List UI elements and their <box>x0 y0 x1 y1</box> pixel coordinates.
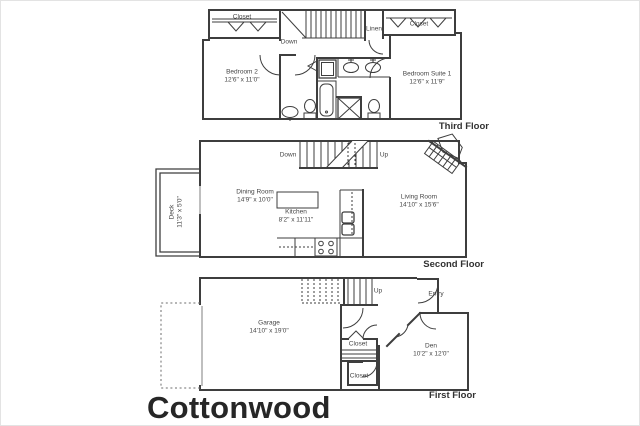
stairs-down <box>282 10 365 38</box>
toilet-icon <box>368 100 380 120</box>
living-room-label: Living Room 14'10" x 15'6" <box>399 194 438 209</box>
driveway-outline <box>161 303 200 388</box>
room-dims: 14'9" x 10'0" <box>236 196 274 204</box>
room-name: Dining Room <box>236 189 274 197</box>
first-floor-label: First Floor <box>429 391 476 401</box>
room-dims: 12'6" x 11'9" <box>403 78 451 86</box>
room-dims: 10'2" x 12'0" <box>413 350 449 358</box>
second-floor-plan <box>156 128 471 257</box>
third-floor-label: Third Floor <box>439 122 489 132</box>
floorplan-page: Closet Down Linen Closet Bedroom 2 12'6"… <box>0 0 640 426</box>
linen-label: Linen <box>366 25 382 33</box>
second-floor-label: Second Floor <box>423 260 484 270</box>
room-name: Living Room <box>399 194 438 202</box>
entry-label: Entry <box>428 290 443 298</box>
room-name: Den <box>413 343 449 351</box>
room-name: Garage <box>249 320 288 328</box>
room-name: Kitchen <box>279 209 314 217</box>
room-dims: 14'10" x 15'6" <box>399 201 438 209</box>
floorplan-linework <box>0 0 640 426</box>
den-label: Den 10'2" x 12'0" <box>413 343 449 358</box>
room-name: Bedroom 2 <box>224 69 259 77</box>
refrigerator-icon <box>342 212 354 235</box>
bedroom-suite1-label: Bedroom Suite 1 12'6" x 11'9" <box>403 71 451 86</box>
bathtub-icon <box>317 81 336 119</box>
washer-dryer-icon <box>319 60 336 78</box>
garage-label: Garage 14'10" x 19'0" <box>249 320 288 335</box>
room-name: Deck <box>169 196 177 228</box>
dining-room-label: Dining Room 14'9" x 10'0" <box>236 189 274 204</box>
room-dims: 12'6" x 11'0" <box>224 76 259 84</box>
stairs-up-label: Up <box>374 287 382 295</box>
bedroom2-label: Bedroom 2 12'6" x 11'0" <box>224 69 259 84</box>
shower-icon <box>338 98 361 119</box>
deck-label: Deck 11'3" x 5'0" <box>169 196 184 228</box>
kitchen-label: Kitchen 8'2" x 11'11" <box>279 209 314 224</box>
corner-fireplace-icon <box>425 128 471 174</box>
plan-title: Cottonwood <box>147 392 331 423</box>
closet-right-label: Closet <box>410 20 428 28</box>
bifold-closet-door <box>348 325 377 339</box>
stairs-switchback <box>300 141 377 168</box>
closet-rod-left <box>212 19 277 31</box>
room-name: Bedroom Suite 1 <box>403 71 451 79</box>
room-dims: 11'3" x 5'0" <box>176 196 184 228</box>
stairs-down-label: Down <box>280 151 297 159</box>
closet-upper-label: Closet <box>349 340 367 348</box>
closet-shelves <box>341 350 377 358</box>
stairs-down-label: Down <box>281 38 298 46</box>
room-dims: 14'10" x 19'0" <box>249 327 288 335</box>
stove-icon <box>315 238 337 256</box>
closet-left-label: Closet <box>233 13 251 21</box>
kitchen-island <box>277 192 318 208</box>
double-vanity-sinks-icon <box>338 58 390 77</box>
stairs-up <box>302 279 377 305</box>
first-floor-plan <box>161 278 468 390</box>
closet-lower-label: Closet <box>350 372 368 380</box>
toilet-icon <box>304 100 316 120</box>
stairs-up-label: Up <box>380 151 388 159</box>
room-dims: 8'2" x 11'11" <box>279 216 314 224</box>
